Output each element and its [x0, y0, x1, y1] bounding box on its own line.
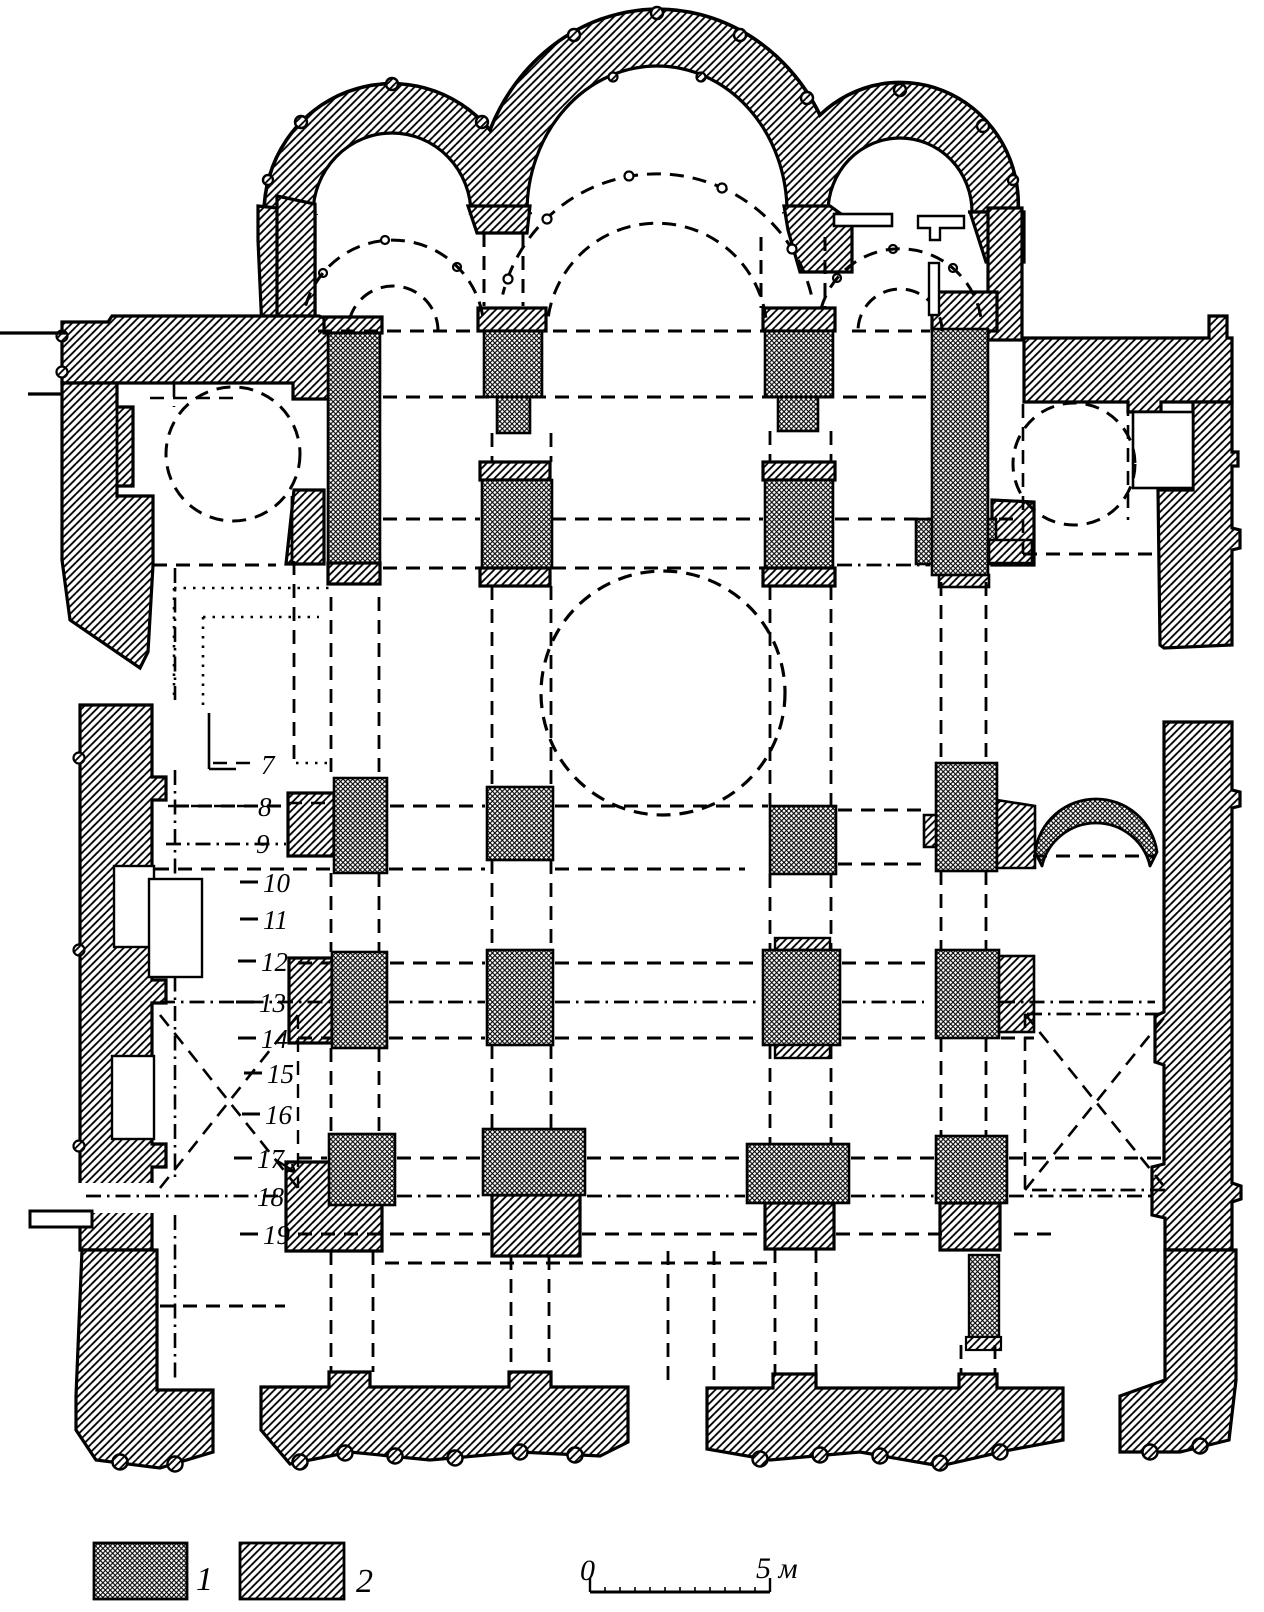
svg-text:8: 8 — [258, 792, 272, 822]
svg-text:19: 19 — [263, 1220, 291, 1250]
svg-text:17: 17 — [257, 1144, 286, 1174]
svg-text:7: 7 — [261, 750, 276, 780]
svg-text:13: 13 — [259, 988, 286, 1018]
svg-text:0: 0 — [580, 1554, 595, 1587]
svg-text:12: 12 — [261, 947, 288, 977]
svg-text:10: 10 — [263, 868, 291, 898]
svg-text:16: 16 — [265, 1100, 293, 1130]
svg-text:1: 1 — [196, 1561, 213, 1598]
svg-text:18: 18 — [257, 1182, 285, 1212]
svg-text:11: 11 — [263, 905, 288, 935]
svg-text:5 м: 5 м — [756, 1552, 798, 1585]
svg-text:2: 2 — [356, 1563, 373, 1600]
svg-text:9: 9 — [256, 829, 270, 859]
svg-text:15: 15 — [267, 1059, 294, 1089]
svg-text:14: 14 — [261, 1024, 288, 1054]
